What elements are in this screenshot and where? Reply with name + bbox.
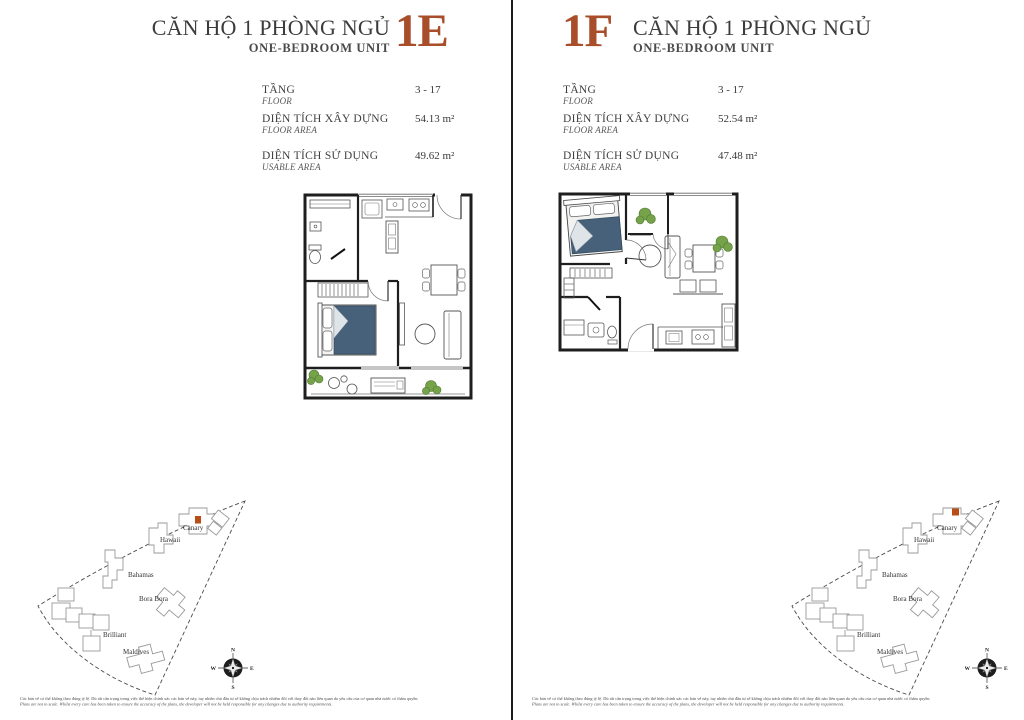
spec-label-en: FLOOR: [563, 96, 596, 106]
site-building-label-canary: Canary: [937, 524, 957, 532]
site-building-label-maldives: Maldives: [877, 648, 903, 656]
svg-text:E: E: [250, 666, 254, 672]
floor-plan-1e-drawing: [303, 193, 473, 400]
spec-label-en: USABLE AREA: [262, 162, 378, 172]
compass-icon: N S E W: [965, 646, 1009, 690]
disclaimer-en: Plans are not to scale. Whilst every car…: [20, 702, 492, 708]
unit-code: 1F: [562, 8, 612, 55]
spec-label-en: USABLE AREA: [563, 162, 679, 172]
spec-value: 54.13 m²: [415, 113, 454, 125]
floor-plan-brochure-page: CĂN HỘ 1 PHÒNG NGỦ ONE-BEDROOM UNIT 1E T…: [0, 0, 1024, 720]
spec-floor-area: DIỆN TÍCH XÂY DỰNG FLOOR AREA 52.54 m²: [563, 113, 689, 135]
spec-floor: TẦNG FLOOR 3 - 17: [262, 84, 295, 106]
disclaimer: Các bản vẽ có thể không theo đúng tỷ lệ.…: [532, 696, 1004, 707]
spec-label-vi: TẦNG: [262, 84, 295, 96]
svg-text:E: E: [1004, 666, 1008, 672]
spec-label-en: FLOOR: [262, 96, 295, 106]
spec-floor: TẦNG FLOOR 3 - 17: [563, 84, 596, 106]
site-building-label-bahamas: Bahamas: [882, 571, 908, 579]
spec-value: 47.48 m²: [718, 150, 757, 162]
floor-plan-1f-drawing: [558, 192, 739, 352]
highlighted-unit-marker: [195, 516, 201, 524]
panel-divider: [511, 0, 513, 720]
site-building-label-hawaii: Hawaii: [914, 536, 934, 544]
unit-title-block: CĂN HỘ 1 PHÒNG NGỦ ONE-BEDROOM UNIT: [633, 16, 903, 56]
spec-value: 52.54 m²: [718, 113, 757, 125]
disclaimer-en: Plans are not to scale. Whilst every car…: [532, 702, 1004, 708]
site-building-label-canary: Canary: [183, 524, 203, 532]
site-building-label-bahamas: Bahamas: [128, 571, 154, 579]
svg-text:S: S: [231, 685, 234, 690]
svg-text:N: N: [231, 648, 235, 654]
site-building-label-hawaii: Hawaii: [160, 536, 180, 544]
svg-text:W: W: [965, 666, 971, 672]
svg-text:N: N: [985, 648, 989, 654]
spec-label-vi: DIỆN TÍCH XÂY DỰNG: [262, 113, 388, 125]
spec-value: 49.62 m²: [415, 150, 454, 162]
site-building-label-brilliant: Brilliant: [103, 631, 126, 639]
spec-value: 3 - 17: [415, 84, 441, 96]
site-building-label-bora-bora: Bora Bora: [139, 595, 168, 603]
site-building-label-bora-bora: Bora Bora: [893, 595, 922, 603]
spec-label-en: FLOOR AREA: [262, 125, 388, 135]
spec-label-vi: TẦNG: [563, 84, 596, 96]
spec-label-vi: DIỆN TÍCH SỬ DỤNG: [563, 150, 679, 162]
unit-title-en: ONE-BEDROOM UNIT: [633, 41, 903, 56]
disclaimer: Các bản vẽ có thể không theo đúng tỷ lệ.…: [20, 696, 492, 707]
unit-title-vi: CĂN HỘ 1 PHÒNG NGỦ: [120, 16, 390, 40]
unit-title-block: CĂN HỘ 1 PHÒNG NGỦ ONE-BEDROOM UNIT: [120, 16, 390, 56]
spec-label-vi: DIỆN TÍCH SỬ DỤNG: [262, 150, 378, 162]
svg-text:S: S: [985, 685, 988, 690]
spec-usable-area: DIỆN TÍCH SỬ DỤNG USABLE AREA 47.48 m²: [563, 150, 679, 172]
spec-label-vi: DIỆN TÍCH XÂY DỰNG: [563, 113, 689, 125]
unit-title-en: ONE-BEDROOM UNIT: [120, 41, 390, 56]
unit-title-vi: CĂN HỘ 1 PHÒNG NGỦ: [633, 16, 903, 40]
site-map: Canary Hawaii Bahamas Bora Bora Brillian…: [33, 498, 255, 697]
spec-usable-area: DIỆN TÍCH SỬ DỤNG USABLE AREA 49.62 m²: [262, 150, 378, 172]
site-building-label-brilliant: Brilliant: [857, 631, 880, 639]
compass-icon: N S E W: [211, 646, 255, 690]
spec-floor-area: DIỆN TÍCH XÂY DỰNG FLOOR AREA 54.13 m²: [262, 113, 388, 135]
svg-text:W: W: [211, 666, 217, 672]
site-building-label-maldives: Maldives: [123, 648, 149, 656]
unit-code: 1E: [395, 8, 448, 55]
highlighted-unit-marker: [952, 509, 959, 516]
spec-label-en: FLOOR AREA: [563, 125, 689, 135]
site-map: Canary Hawaii Bahamas Bora Bora Brillian…: [787, 498, 1009, 697]
spec-value: 3 - 17: [718, 84, 744, 96]
